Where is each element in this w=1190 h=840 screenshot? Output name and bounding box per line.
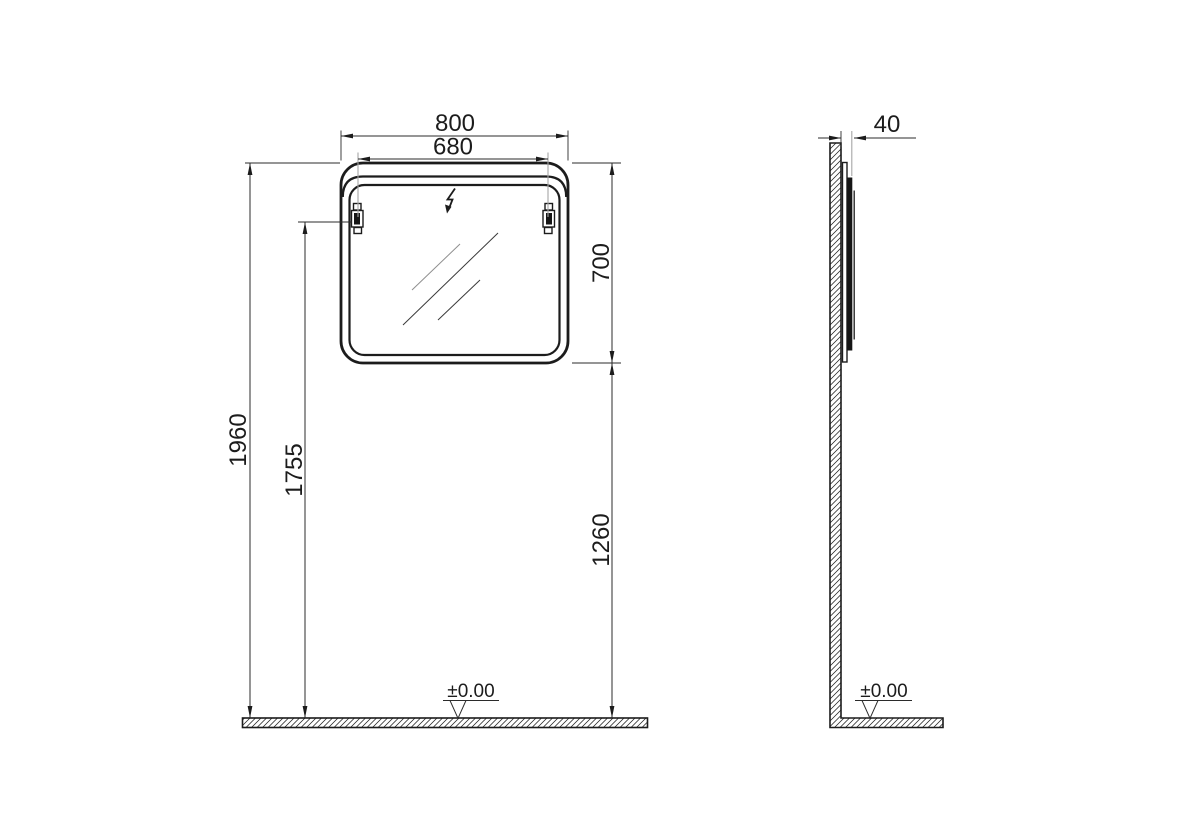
drawing-canvas: 800 680 700 1960 (0, 0, 1190, 840)
floor-front (243, 718, 648, 728)
dim-label-1260: 1260 (588, 513, 615, 566)
mounting-plate-profile (843, 163, 848, 363)
dim-label-700: 700 (588, 243, 615, 283)
front-view: 800 680 700 1960 (225, 110, 648, 728)
mounting-bracket-left (352, 204, 364, 234)
level-triangle-icon (450, 701, 466, 719)
reflection-line (438, 280, 480, 320)
dim-label-1755: 1755 (281, 443, 308, 496)
dim-height-1960: 1960 (225, 163, 340, 718)
reflection-line (403, 233, 498, 325)
dim-height-700: 700 (572, 163, 621, 363)
dim-width-680: 680 (358, 134, 548, 218)
reflection-line (412, 244, 460, 290)
mirror-reflection-lines (403, 233, 498, 325)
mounting-bracket-right (543, 204, 555, 234)
mirror-installation-drawing: 800 680 700 1960 (0, 0, 1190, 840)
side-view: 40 ±0.00 (818, 111, 943, 728)
dim-label-680: 680 (433, 134, 473, 161)
dim-label-40: 40 (874, 111, 901, 138)
mirror-side-profile (843, 163, 855, 363)
level-marker-front: ±0.00 (443, 681, 499, 718)
mirror-inner-frame (350, 185, 560, 355)
level-marker-side: ±0.00 (855, 681, 912, 718)
dim-height-1260: 1260 (588, 363, 615, 718)
mirror-body-profile (847, 178, 852, 351)
level-triangle-icon (862, 701, 878, 719)
dim-label-1960: 1960 (225, 413, 252, 466)
mirror-front (341, 163, 568, 363)
mirror-top-profile-line (343, 177, 566, 198)
level-label-side: ±0.00 (860, 681, 907, 702)
level-label-front: ±0.00 (447, 681, 494, 702)
power-connection-icon (445, 189, 455, 214)
mirror-outer-frame (341, 163, 568, 363)
